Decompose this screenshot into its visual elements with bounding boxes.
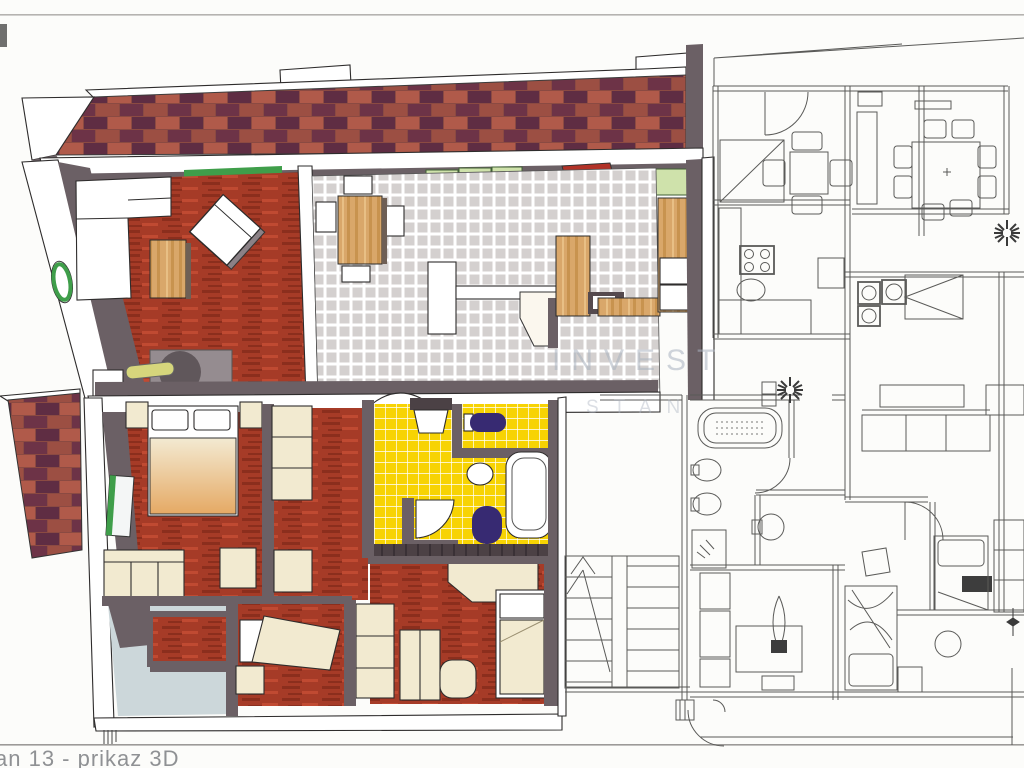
door-arc-kitchen bbox=[905, 502, 943, 540]
burner bbox=[761, 250, 770, 259]
roof-tiles bbox=[56, 75, 686, 155]
apartment-3d-view bbox=[0, 44, 714, 744]
bedroom-3 bbox=[236, 600, 356, 706]
chair-seat-dark bbox=[771, 640, 787, 653]
watermark-line1: INVEST bbox=[552, 344, 726, 377]
hall-wall-strip bbox=[150, 662, 232, 672]
closet bbox=[700, 659, 730, 687]
bathtub-2d-inner bbox=[704, 413, 776, 443]
burner bbox=[761, 263, 770, 272]
caption-text: an 13 - prikaz 3D bbox=[0, 746, 180, 768]
bedroom3-right-wall bbox=[344, 600, 356, 706]
dining-table-2d bbox=[912, 142, 980, 208]
corner-cabinet bbox=[905, 275, 963, 319]
chair bbox=[894, 176, 912, 198]
burner bbox=[886, 284, 902, 300]
master-bedroom bbox=[102, 402, 274, 602]
bidet-stem bbox=[691, 465, 699, 475]
kitchen-boundary-2d bbox=[858, 275, 963, 326]
double-bed bbox=[148, 406, 238, 516]
kitchen-island bbox=[428, 262, 456, 334]
fridge-lower bbox=[660, 285, 689, 310]
base-wall bbox=[94, 714, 562, 731]
chair bbox=[978, 146, 996, 168]
bidet-2d bbox=[693, 459, 721, 481]
entry-door-2d bbox=[676, 700, 694, 720]
master-window bbox=[106, 475, 134, 537]
terrace-arc bbox=[688, 710, 724, 746]
corner-unit bbox=[898, 667, 922, 692]
dining-table bbox=[338, 196, 382, 264]
dresser bbox=[104, 550, 184, 598]
shower-2d bbox=[692, 530, 726, 568]
cabinet bbox=[915, 101, 951, 109]
floorplan-drawing: INVEST STAN an 13 - prikaz 3D bbox=[0, 0, 1024, 768]
bathroom-2d bbox=[691, 382, 790, 568]
closet bbox=[700, 573, 730, 609]
cabinet-row bbox=[880, 385, 964, 407]
coffee-table bbox=[150, 240, 186, 298]
kids-wardrobe-a bbox=[356, 604, 394, 698]
lower-floor bbox=[0, 389, 566, 744]
roof bbox=[22, 44, 703, 180]
lower-left-roof bbox=[8, 393, 82, 558]
tilted-table bbox=[862, 548, 890, 576]
cabinet bbox=[858, 92, 882, 106]
pillow-2d bbox=[938, 540, 984, 566]
small-table bbox=[790, 152, 828, 194]
chair bbox=[924, 120, 946, 138]
base-feet bbox=[104, 730, 116, 744]
chair bbox=[763, 160, 785, 186]
table-center-mark bbox=[943, 168, 951, 176]
dining-room-2d bbox=[857, 92, 996, 220]
stair-steps bbox=[565, 556, 679, 688]
bed-2d-center bbox=[845, 586, 897, 690]
kids-top-wall bbox=[368, 556, 550, 564]
fridge-upper bbox=[660, 258, 689, 284]
door-arc-bath bbox=[755, 458, 790, 493]
room-a-bed-diagonal bbox=[720, 140, 784, 202]
kids-bedroom bbox=[356, 556, 558, 706]
living-room bbox=[22, 160, 318, 402]
bedroom-2 bbox=[272, 400, 374, 600]
scanned-floorplan-page: INVEST STAN an 13 - prikaz 3D bbox=[0, 0, 1024, 768]
wardrobe-row-2d bbox=[862, 415, 990, 451]
small-door-arc bbox=[713, 700, 725, 712]
desk-2d bbox=[736, 626, 802, 672]
door-arc-a bbox=[765, 92, 808, 135]
fridge-2d bbox=[818, 258, 844, 288]
sun-symbol bbox=[777, 377, 803, 403]
nightstand-left bbox=[126, 402, 148, 428]
bathroom-3d bbox=[374, 398, 562, 558]
bidet-purple bbox=[472, 506, 502, 544]
closet bbox=[700, 611, 730, 657]
bedroom2-bath-wall bbox=[362, 400, 374, 558]
burner bbox=[745, 263, 754, 272]
chair bbox=[952, 120, 974, 138]
chair bbox=[922, 204, 944, 220]
chair bbox=[830, 160, 852, 186]
scan-edge-blob bbox=[0, 24, 7, 47]
counter-lower-2d bbox=[719, 300, 811, 334]
burner-box bbox=[858, 282, 880, 304]
burner bbox=[745, 250, 754, 259]
dark-walkway bbox=[374, 544, 550, 558]
wood-counter bbox=[556, 236, 590, 316]
burner bbox=[862, 309, 876, 323]
burner bbox=[862, 286, 876, 300]
sun-symbol bbox=[994, 220, 1020, 246]
scan-top-line bbox=[0, 14, 1024, 16]
roof-outline-lines bbox=[714, 38, 1024, 86]
kitchen-2d bbox=[719, 208, 844, 334]
stairwell bbox=[565, 556, 679, 688]
pillow-2d bbox=[849, 654, 893, 686]
stool bbox=[220, 548, 256, 588]
mirror bbox=[410, 398, 452, 410]
bed-2d-right bbox=[934, 536, 988, 610]
bedroom2-wardrobe bbox=[272, 406, 312, 500]
toilet-purple bbox=[470, 413, 506, 432]
watermark-line2: STAN bbox=[586, 397, 695, 418]
nightstand-right bbox=[240, 402, 262, 428]
hall-right-wall bbox=[226, 602, 238, 716]
kids-right-wall bbox=[544, 556, 558, 706]
hall-red-nook bbox=[150, 614, 232, 664]
chair bbox=[792, 132, 822, 150]
counter bbox=[719, 208, 741, 334]
chair bbox=[978, 176, 996, 198]
cabinet-row bbox=[986, 385, 1024, 415]
kids-bed bbox=[496, 590, 548, 698]
roof-right-cap bbox=[686, 44, 703, 156]
bidet-white bbox=[467, 463, 493, 485]
chair bbox=[894, 146, 912, 168]
desk-drawer bbox=[762, 676, 794, 690]
bathtub-mat bbox=[716, 422, 764, 434]
staircase bbox=[565, 556, 679, 688]
toilet-2d bbox=[693, 493, 721, 515]
sideboard bbox=[857, 112, 877, 204]
round-table-2d bbox=[935, 631, 961, 657]
coffee-table-edge bbox=[186, 243, 191, 299]
wardrobe-dividers bbox=[862, 410, 990, 451]
room-a bbox=[720, 92, 852, 214]
kids-chair bbox=[440, 660, 476, 698]
bedroom3-nightstand bbox=[236, 666, 264, 694]
washbasin bbox=[414, 410, 448, 433]
bedroom2-chest bbox=[274, 550, 312, 592]
counter-lower bbox=[598, 298, 660, 316]
stair-direction-arrow bbox=[567, 557, 610, 672]
